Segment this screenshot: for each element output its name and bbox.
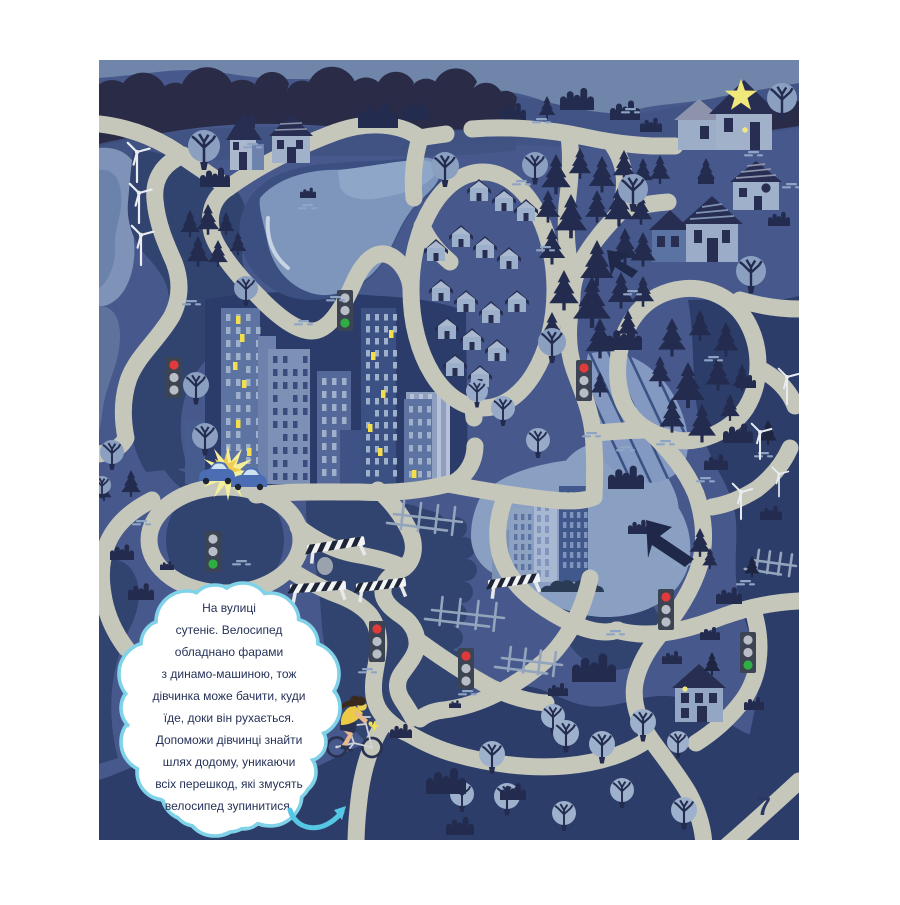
svg-text:Допоможи дівчинці знайти: Допоможи дівчинці знайти	[156, 733, 303, 747]
svg-text:з динамо-машиною, тож: з динамо-машиною, тож	[162, 667, 297, 681]
svg-text:велосипед зупинитися.: велосипед зупинитися.	[165, 799, 293, 813]
svg-text:На вулиці: На вулиці	[202, 601, 256, 615]
svg-text:їде, доки він рухається.: їде, доки він рухається.	[163, 711, 294, 725]
svg-text:всіх перешкод, які змусять: всіх перешкод, які змусять	[155, 777, 303, 791]
svg-text:обладнано фарами: обладнано фарами	[175, 645, 283, 659]
svg-text:дівчинка може бачити, куди: дівчинка може бачити, куди	[153, 689, 306, 703]
svg-text:сутеніє. Велосипед: сутеніє. Велосипед	[176, 623, 283, 637]
svg-text:шлях додому, уникаючи: шлях додому, уникаючи	[163, 755, 296, 769]
svg-text:7: 7	[757, 793, 771, 821]
